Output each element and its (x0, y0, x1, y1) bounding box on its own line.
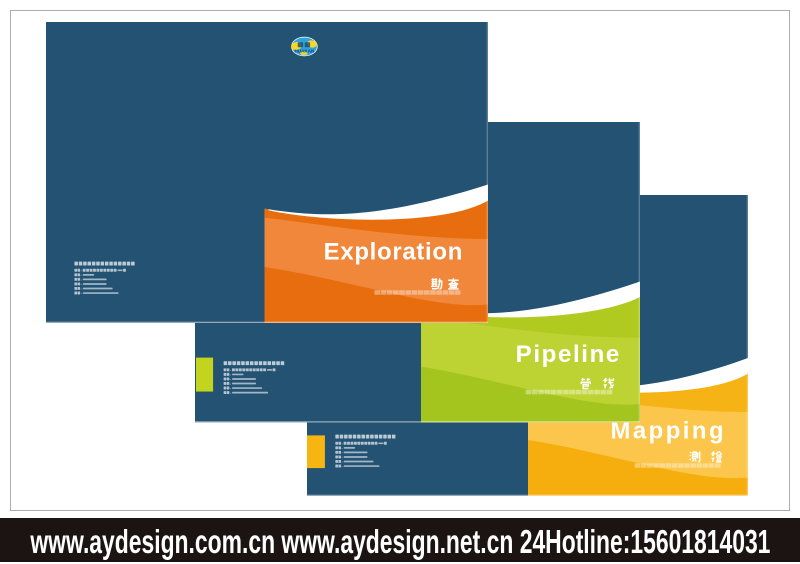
svg-text:HUAKAN: HUAKAN (295, 49, 315, 54)
svg-text:Pipeline: Pipeline (516, 341, 621, 368)
svg-text:Exploration: Exploration (324, 238, 463, 265)
